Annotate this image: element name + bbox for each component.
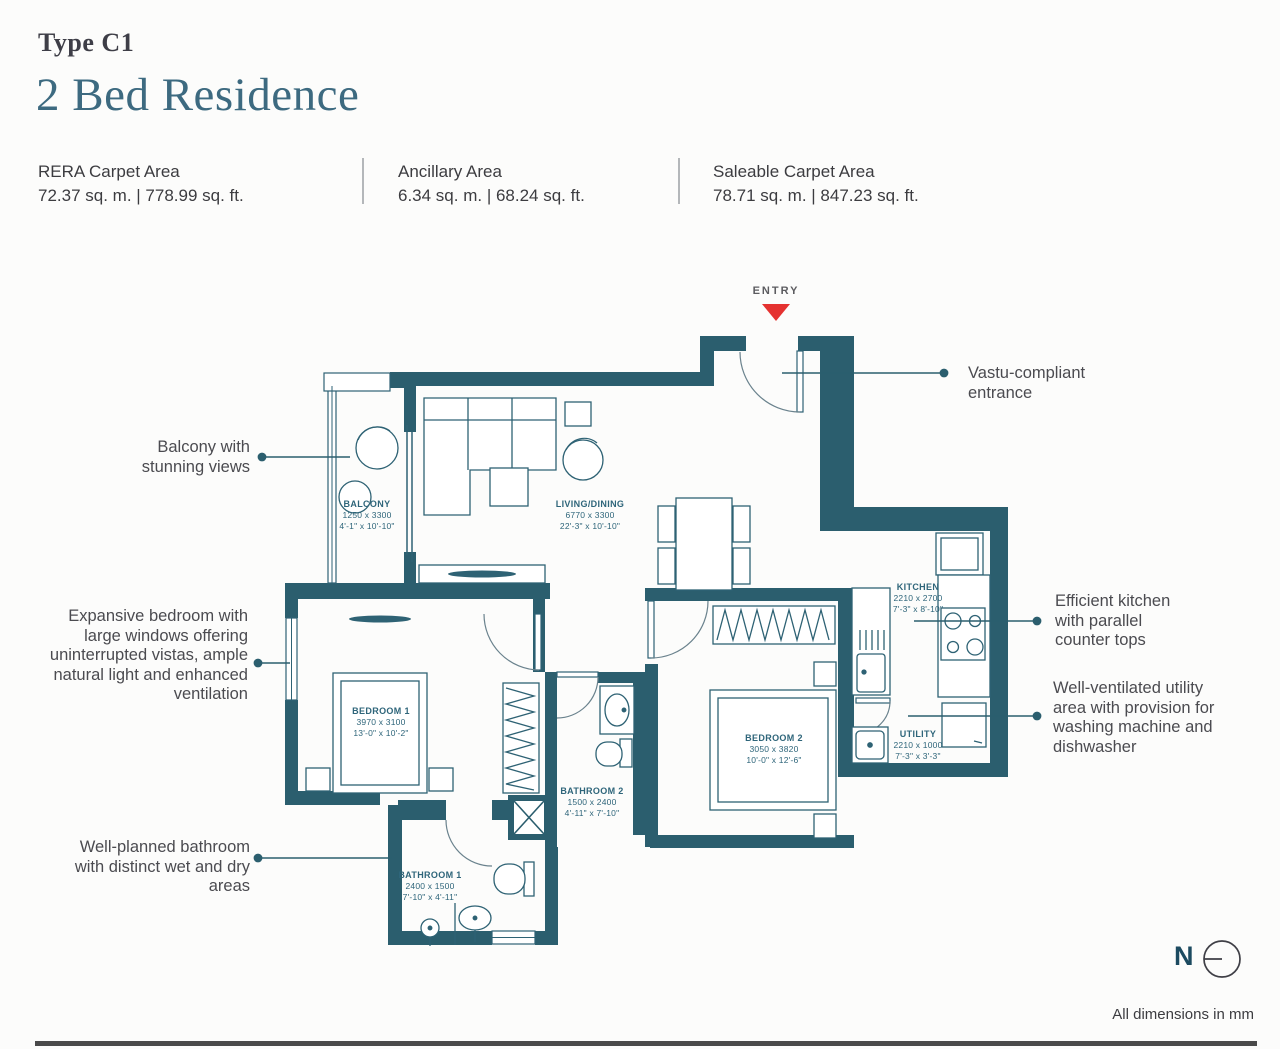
room-label-living-dining: LIVING/DINING 6770 x 3300 22'-3" x 10'-1… xyxy=(556,499,625,532)
utility-note: Well-ventilated utility area with provis… xyxy=(1053,679,1238,757)
stat-rera-carpet-area: RERA Carpet Area 72.37 sq. m. | 778.99 s… xyxy=(38,160,244,208)
stat-value: 72.37 sq. m. | 778.99 sq. ft. xyxy=(38,184,244,208)
room-label-bedroom2: BEDROOM 2 3050 x 3820 10'-0" x 12'-6" xyxy=(745,733,803,766)
dimensions-note: All dimensions in mm xyxy=(1112,1006,1254,1023)
floor-plan-page: Type C1 2 Bed Residence RERA Carpet Area… xyxy=(0,0,1280,1049)
entrance-note: Vastu-compliant entrance xyxy=(968,364,1108,403)
shaft xyxy=(508,795,550,840)
room-label-bathroom1: BATHROOM 1 2400 x 1500 7'-10" x 4'-11" xyxy=(398,870,461,903)
stat-label: RERA Carpet Area xyxy=(38,160,244,184)
room-label-balcony: BALCONY 1250 x 3300 4'-1" x 10'-10" xyxy=(339,499,394,532)
type-label: Type C1 xyxy=(38,28,134,58)
page-title: 2 Bed Residence xyxy=(36,68,359,122)
balcony-slider xyxy=(407,425,412,562)
stat-divider xyxy=(362,158,364,204)
bathroom-note: Well-planned bathroom with distinct wet … xyxy=(70,838,250,897)
stat-saleable-carpet-area: Saleable Carpet Area 78.71 sq. m. | 847.… xyxy=(713,160,919,208)
kitchen-note: Efficient kitchen with parallel counter … xyxy=(1055,592,1180,651)
stat-value: 6.34 sq. m. | 68.24 sq. ft. xyxy=(398,184,585,208)
stat-value: 78.71 sq. m. | 847.23 sq. ft. xyxy=(713,184,919,208)
stat-label: Saleable Carpet Area xyxy=(713,160,919,184)
stat-ancillary-area: Ancillary Area 6.34 sq. m. | 68.24 sq. f… xyxy=(398,160,585,208)
walls xyxy=(285,336,1008,945)
entry-arrow-icon xyxy=(762,304,790,321)
room-label-kitchen: KITCHEN 2210 x 2700 7'-3" x 8'-10" xyxy=(893,582,943,615)
balcony-note: Balcony with stunning views xyxy=(100,438,250,477)
north-indicator-icon xyxy=(1204,941,1240,977)
room-label-bedroom1: BEDROOM 1 3970 x 3100 13'-0" x 10'-2" xyxy=(352,706,410,739)
room-label-utility: UTILITY 2210 x 1000 7'-3" x 3'-3" xyxy=(894,729,943,762)
bedroom-note: Expansive bedroom with large windows off… xyxy=(43,607,248,705)
bottom-rule xyxy=(35,1041,1257,1046)
stat-label: Ancillary Area xyxy=(398,160,585,184)
room-label-bathroom2: BATHROOM 2 1500 x 2400 4'-11" x 7'-10" xyxy=(560,786,623,819)
entry-label: ENTRY xyxy=(726,285,826,297)
stat-divider xyxy=(678,158,680,204)
north-label: N xyxy=(1174,941,1194,972)
